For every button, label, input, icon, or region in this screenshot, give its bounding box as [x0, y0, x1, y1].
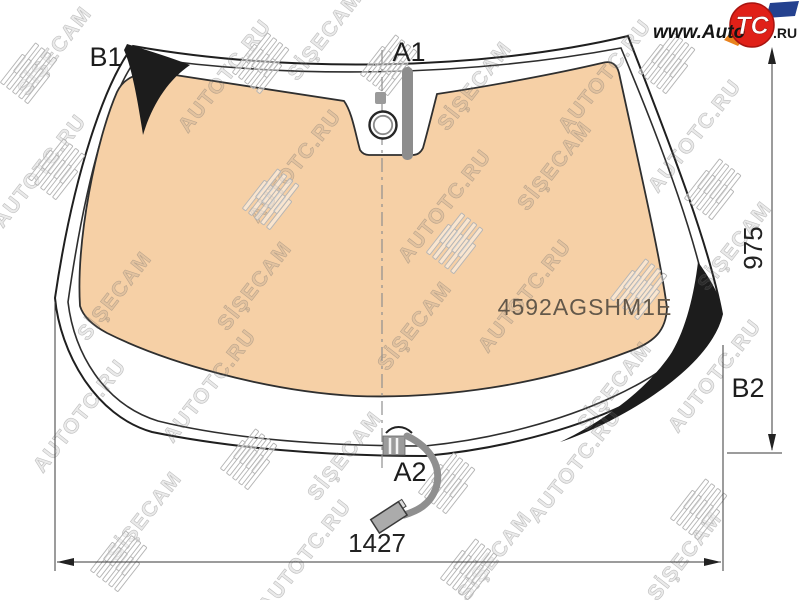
label-b2: B2: [731, 373, 764, 403]
dim-height-value: 975: [738, 226, 768, 269]
dim-width-value: 1427: [348, 528, 406, 558]
watermark-text: SİŞECAM: [643, 507, 726, 600]
watermark-text: AUTOTC.RU: [254, 495, 356, 600]
label-a2: A2: [393, 457, 426, 487]
arrow-up-icon: [768, 47, 776, 64]
sensor-strip-icon: [402, 67, 413, 160]
windshield-diagram: SİŞECAMAUTOTC.RUSİŞECAMAUTOTC.RUSİŞECAMA…: [0, 0, 800, 600]
watermark-text: SİŞECAM: [13, 2, 96, 100]
camera-window-inner-icon: [374, 116, 392, 134]
windshield-diagram-page: SİŞECAMAUTOTC.RUSİŞECAMAUTOTC.RUSİŞECAMA…: [0, 0, 800, 600]
logo-ru-text: .RU: [773, 25, 797, 41]
arrow-down-icon: [768, 434, 776, 451]
part-number: 4592AGSHM1E: [498, 294, 673, 320]
logo-tc-text: TC: [735, 12, 769, 40]
logo-www-text: www.Auto: [653, 22, 745, 43]
label-a1: A1: [392, 37, 425, 67]
connector-block-a2: [383, 436, 405, 455]
site-logo: www.Auto TC .RU: [653, 1, 799, 47]
arrow-right-icon: [704, 558, 721, 566]
label-b1: B1: [89, 42, 122, 72]
watermark-hatch-icon: [670, 477, 730, 540]
arrow-left-icon: [57, 558, 74, 566]
sensor-pad-icon: [375, 92, 386, 104]
